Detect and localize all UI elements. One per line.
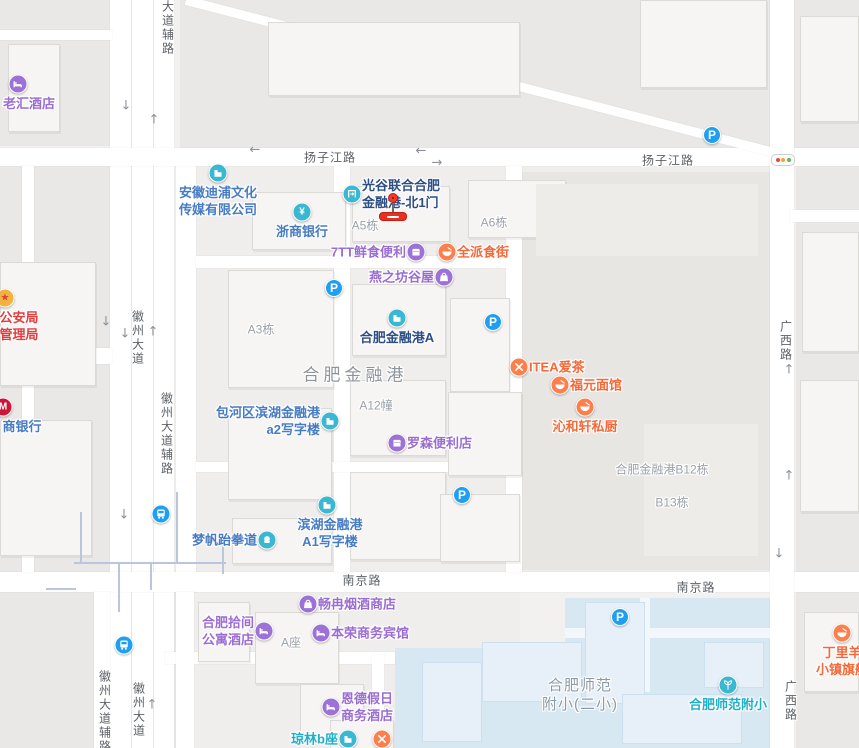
poi-label-line: 管理局 (0, 326, 39, 343)
parking-icon[interactable]: P (611, 608, 629, 626)
company-icon (318, 496, 337, 515)
company-icon (321, 412, 340, 431)
poi-label-line: 7TT鲜食便利 (331, 244, 406, 261)
area-label-line: B13栋 (655, 496, 688, 511)
poi-label: 光谷联合合肥金融港-北1门 (362, 177, 440, 211)
poi-label: 合肥师范附小 (689, 696, 767, 713)
road-service (176, 166, 196, 592)
road-label: 南京路 (676, 579, 715, 596)
shop-icon (388, 434, 407, 453)
poi-label: 琼林b座 (291, 731, 338, 748)
building (800, 380, 859, 512)
hotel-icon (322, 698, 341, 717)
road-yangzijiang (0, 148, 859, 166)
waterline (80, 512, 82, 564)
poi-label-line: 浙商银行 (276, 223, 328, 240)
road-label: 广西路 (778, 320, 795, 362)
bowl-icon (551, 376, 570, 395)
bowl-icon (438, 243, 457, 262)
tree-icon (719, 676, 738, 695)
company-icon (209, 164, 228, 183)
direction-arrow-up: ↑ (149, 113, 160, 128)
poi-label: 公安局管理局 (0, 309, 39, 343)
poi-label: 罗森便利店 (407, 435, 472, 452)
area-label: A6栋 (481, 216, 508, 231)
poi-label-line: 丁里羊 (816, 644, 859, 661)
road-label: 扬子江路 (642, 152, 694, 169)
bag-icon (299, 595, 318, 614)
direction-arrow-up: ↑ (147, 698, 158, 713)
road-minor (0, 30, 112, 40)
poi-label: 包河区滨湖金融港a2写字楼 (216, 404, 320, 438)
poi-label-line: 公寓酒店 (202, 631, 254, 648)
poi-label-line: 罗森便利店 (407, 435, 472, 452)
poi-label-line: 商务酒店 (341, 707, 393, 724)
marker-base (379, 212, 407, 221)
road-minor (176, 592, 194, 748)
poi-label: 丁里羊小镇旗舰 (816, 644, 859, 678)
poi-label-line: 合肥师范附小 (689, 696, 767, 713)
company-icon (388, 309, 407, 328)
road-label: 徽州大道 (131, 682, 148, 738)
poi-label: 福元面馆 (570, 377, 622, 394)
shop-icon (407, 243, 426, 262)
building-low (644, 424, 758, 556)
poi-label: 合肥拾间公寓酒店 (202, 614, 254, 648)
map-canvas[interactable]: 扬子江路扬子江路南京路南京路大道辅路徽州大道徽州大道辅路徽州大道辅路徽州大道广西… (0, 0, 859, 748)
direction-arrow-down: ↓ (119, 508, 130, 523)
poi-label: 燕之坊谷屋 (369, 269, 434, 286)
area-label-line: 合肥师范 (542, 676, 618, 695)
poi-label-line: 老汇酒店 (3, 95, 55, 112)
poi-label-line: 包河区滨湖金融港 (216, 404, 320, 421)
utensils-icon (373, 730, 392, 748)
marker-head (388, 193, 398, 203)
poi-label: 全派食街 (457, 244, 509, 261)
direction-arrow-up: ↑ (784, 363, 795, 378)
poi-label-line: 梦帆跆拳道 (192, 532, 257, 549)
road-label: 徽州大道辅路 (97, 670, 114, 748)
poi-label-line: 合肥金融港A (360, 329, 434, 346)
parking-icon[interactable]: P (325, 279, 343, 297)
waterline (150, 562, 152, 590)
poi-label-line: 安徽迪浦文化 (179, 184, 257, 201)
direction-arrow-down: ↓ (774, 547, 785, 562)
poi-label: 沁和轩私厨 (552, 418, 617, 435)
area-label-line: A12幢 (359, 399, 392, 414)
poi-label-line: 金融港-北1门 (362, 194, 440, 211)
poi-label: 本荣商务宾馆 (331, 625, 409, 642)
building (640, 0, 767, 88)
poi-label: 老汇酒店 (3, 95, 55, 112)
poi-label: 合肥金融港A (360, 329, 434, 346)
poi-label: 7TT鲜食便利 (331, 244, 406, 261)
poi-label: ITEA爱茶 (529, 359, 585, 376)
waterline (118, 562, 120, 612)
area-label: A12幢 (359, 399, 392, 414)
poi-label-line: 传媒有限公司 (179, 201, 257, 218)
poi-label-line: 恩德假日 (341, 690, 393, 707)
poi-label: 畅冉烟酒商店 (318, 596, 396, 613)
bank-icon: ¥ (293, 203, 312, 222)
poi-label: 商银行 (2, 418, 41, 435)
poi-label-line: 商银行 (2, 418, 41, 435)
direction-arrow-down: ↓ (121, 99, 132, 114)
building (802, 232, 859, 352)
poi-label-line: 琼林b座 (291, 731, 338, 748)
building-low (536, 184, 758, 256)
waterline (176, 492, 178, 564)
poi-label-line: 合肥拾间 (202, 614, 254, 631)
bus-stop-icon[interactable] (152, 505, 171, 524)
company-icon (339, 730, 358, 748)
bowl-icon (576, 398, 595, 417)
traffic-light-icon (771, 154, 795, 166)
poi-label-line: 光谷联合合肥 (362, 177, 440, 194)
direction-arrow-right: → (432, 156, 443, 171)
building (440, 494, 520, 562)
direction-arrow-left: ← (416, 144, 427, 159)
poi-label-line: 沁和轩私厨 (552, 418, 617, 435)
poi-label-line: 福元面馆 (570, 377, 622, 394)
direction-arrow-down: ↓ (101, 315, 112, 330)
poi-label-line: ITEA爱茶 (529, 359, 585, 376)
poi-label-line: 小镇旗舰 (816, 661, 859, 678)
traffic-light-dot (787, 158, 791, 162)
bowl-icon (833, 624, 852, 643)
gate-icon (343, 185, 362, 204)
hotel-icon (312, 624, 331, 643)
area-label: A3栋 (248, 323, 275, 338)
hotel-icon (255, 622, 274, 641)
parking-icon[interactable]: P (453, 486, 471, 504)
poi-label: 安徽迪浦文化传媒有限公司 (179, 184, 257, 218)
poi-label-line: 本荣商务宾馆 (331, 625, 409, 642)
fist-icon (258, 531, 277, 550)
hotel-icon (9, 75, 28, 94)
poi-label: 滨湖金融港A1写字楼 (297, 516, 362, 550)
building (450, 298, 510, 392)
traffic-light-dot (781, 158, 785, 162)
direction-arrow-up: ↑ (148, 325, 159, 340)
area-label-line: 附小(二小) (542, 695, 618, 714)
area-label-line: A6栋 (481, 216, 508, 231)
road-label: 徽州大道辅路 (159, 392, 176, 476)
poi-label: 浙商银行 (276, 223, 328, 240)
road-label: 大道辅路 (160, 0, 177, 56)
area-label: B13栋 (655, 496, 688, 511)
poi-label-line: a2写字楼 (216, 421, 320, 438)
building (268, 22, 520, 96)
area-label-line: A3栋 (248, 323, 275, 338)
utensils-icon (510, 358, 529, 377)
poi-label-line: 公安局 (0, 309, 39, 326)
road-label: 广西路 (783, 680, 800, 722)
area-label: 合肥师范附小(二小) (542, 676, 618, 714)
road-minor (790, 210, 859, 222)
bus-stop-icon[interactable] (115, 636, 134, 655)
building (0, 420, 92, 556)
parking-icon[interactable]: P (484, 313, 502, 331)
area-label: A5栋 (352, 219, 379, 234)
direction-arrow-left: ← (250, 143, 261, 158)
area-label: 合肥金融港 (303, 368, 408, 383)
poi-label-line: 全派食街 (457, 244, 509, 261)
poi-label-line: 燕之坊谷屋 (369, 269, 434, 286)
poi-label: 梦帆跆拳道 (192, 532, 257, 549)
parking-icon[interactable]: P (703, 126, 721, 144)
road-nanjing (0, 572, 859, 592)
area-label-line: 合肥金融港 (303, 368, 408, 383)
poi-label: 恩德假日商务酒店 (341, 690, 393, 724)
direction-arrow-up: ↑ (784, 469, 795, 484)
road-label: 扬子江路 (304, 149, 356, 166)
school-building (422, 662, 482, 742)
bag-icon (435, 268, 454, 287)
area-label: 合肥金融港B12栋 (615, 463, 708, 478)
poi-label-line: 畅冉烟酒商店 (318, 596, 396, 613)
area-label-line: A5栋 (352, 219, 379, 234)
poi-label-line: A1写字楼 (297, 533, 362, 550)
building (800, 16, 859, 122)
building (350, 472, 446, 560)
road-label: 徽州大道 (130, 310, 147, 366)
poi-label-line: 滨湖金融港 (297, 516, 362, 533)
waterline (46, 588, 76, 590)
area-label-line: A座 (281, 636, 301, 651)
road-label: 南京路 (342, 572, 381, 589)
traffic-light-dot (776, 158, 780, 162)
area-label: A座 (281, 636, 301, 651)
area-label-line: 合肥金融港B12栋 (615, 463, 708, 478)
